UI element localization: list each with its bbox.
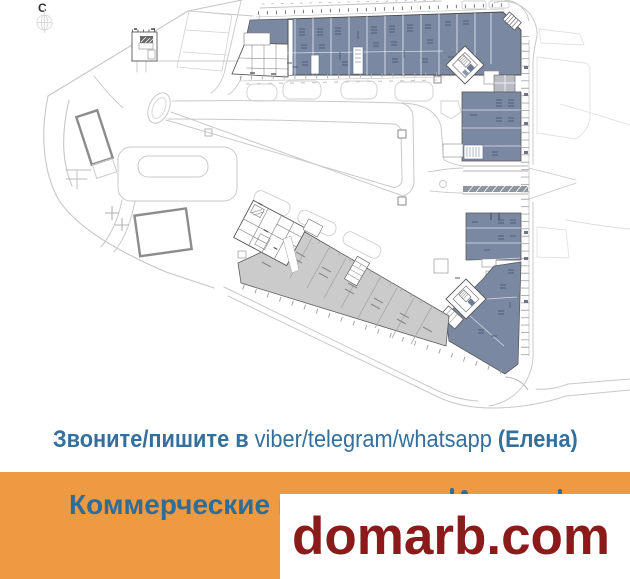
svg-text:C: C (38, 1, 47, 15)
